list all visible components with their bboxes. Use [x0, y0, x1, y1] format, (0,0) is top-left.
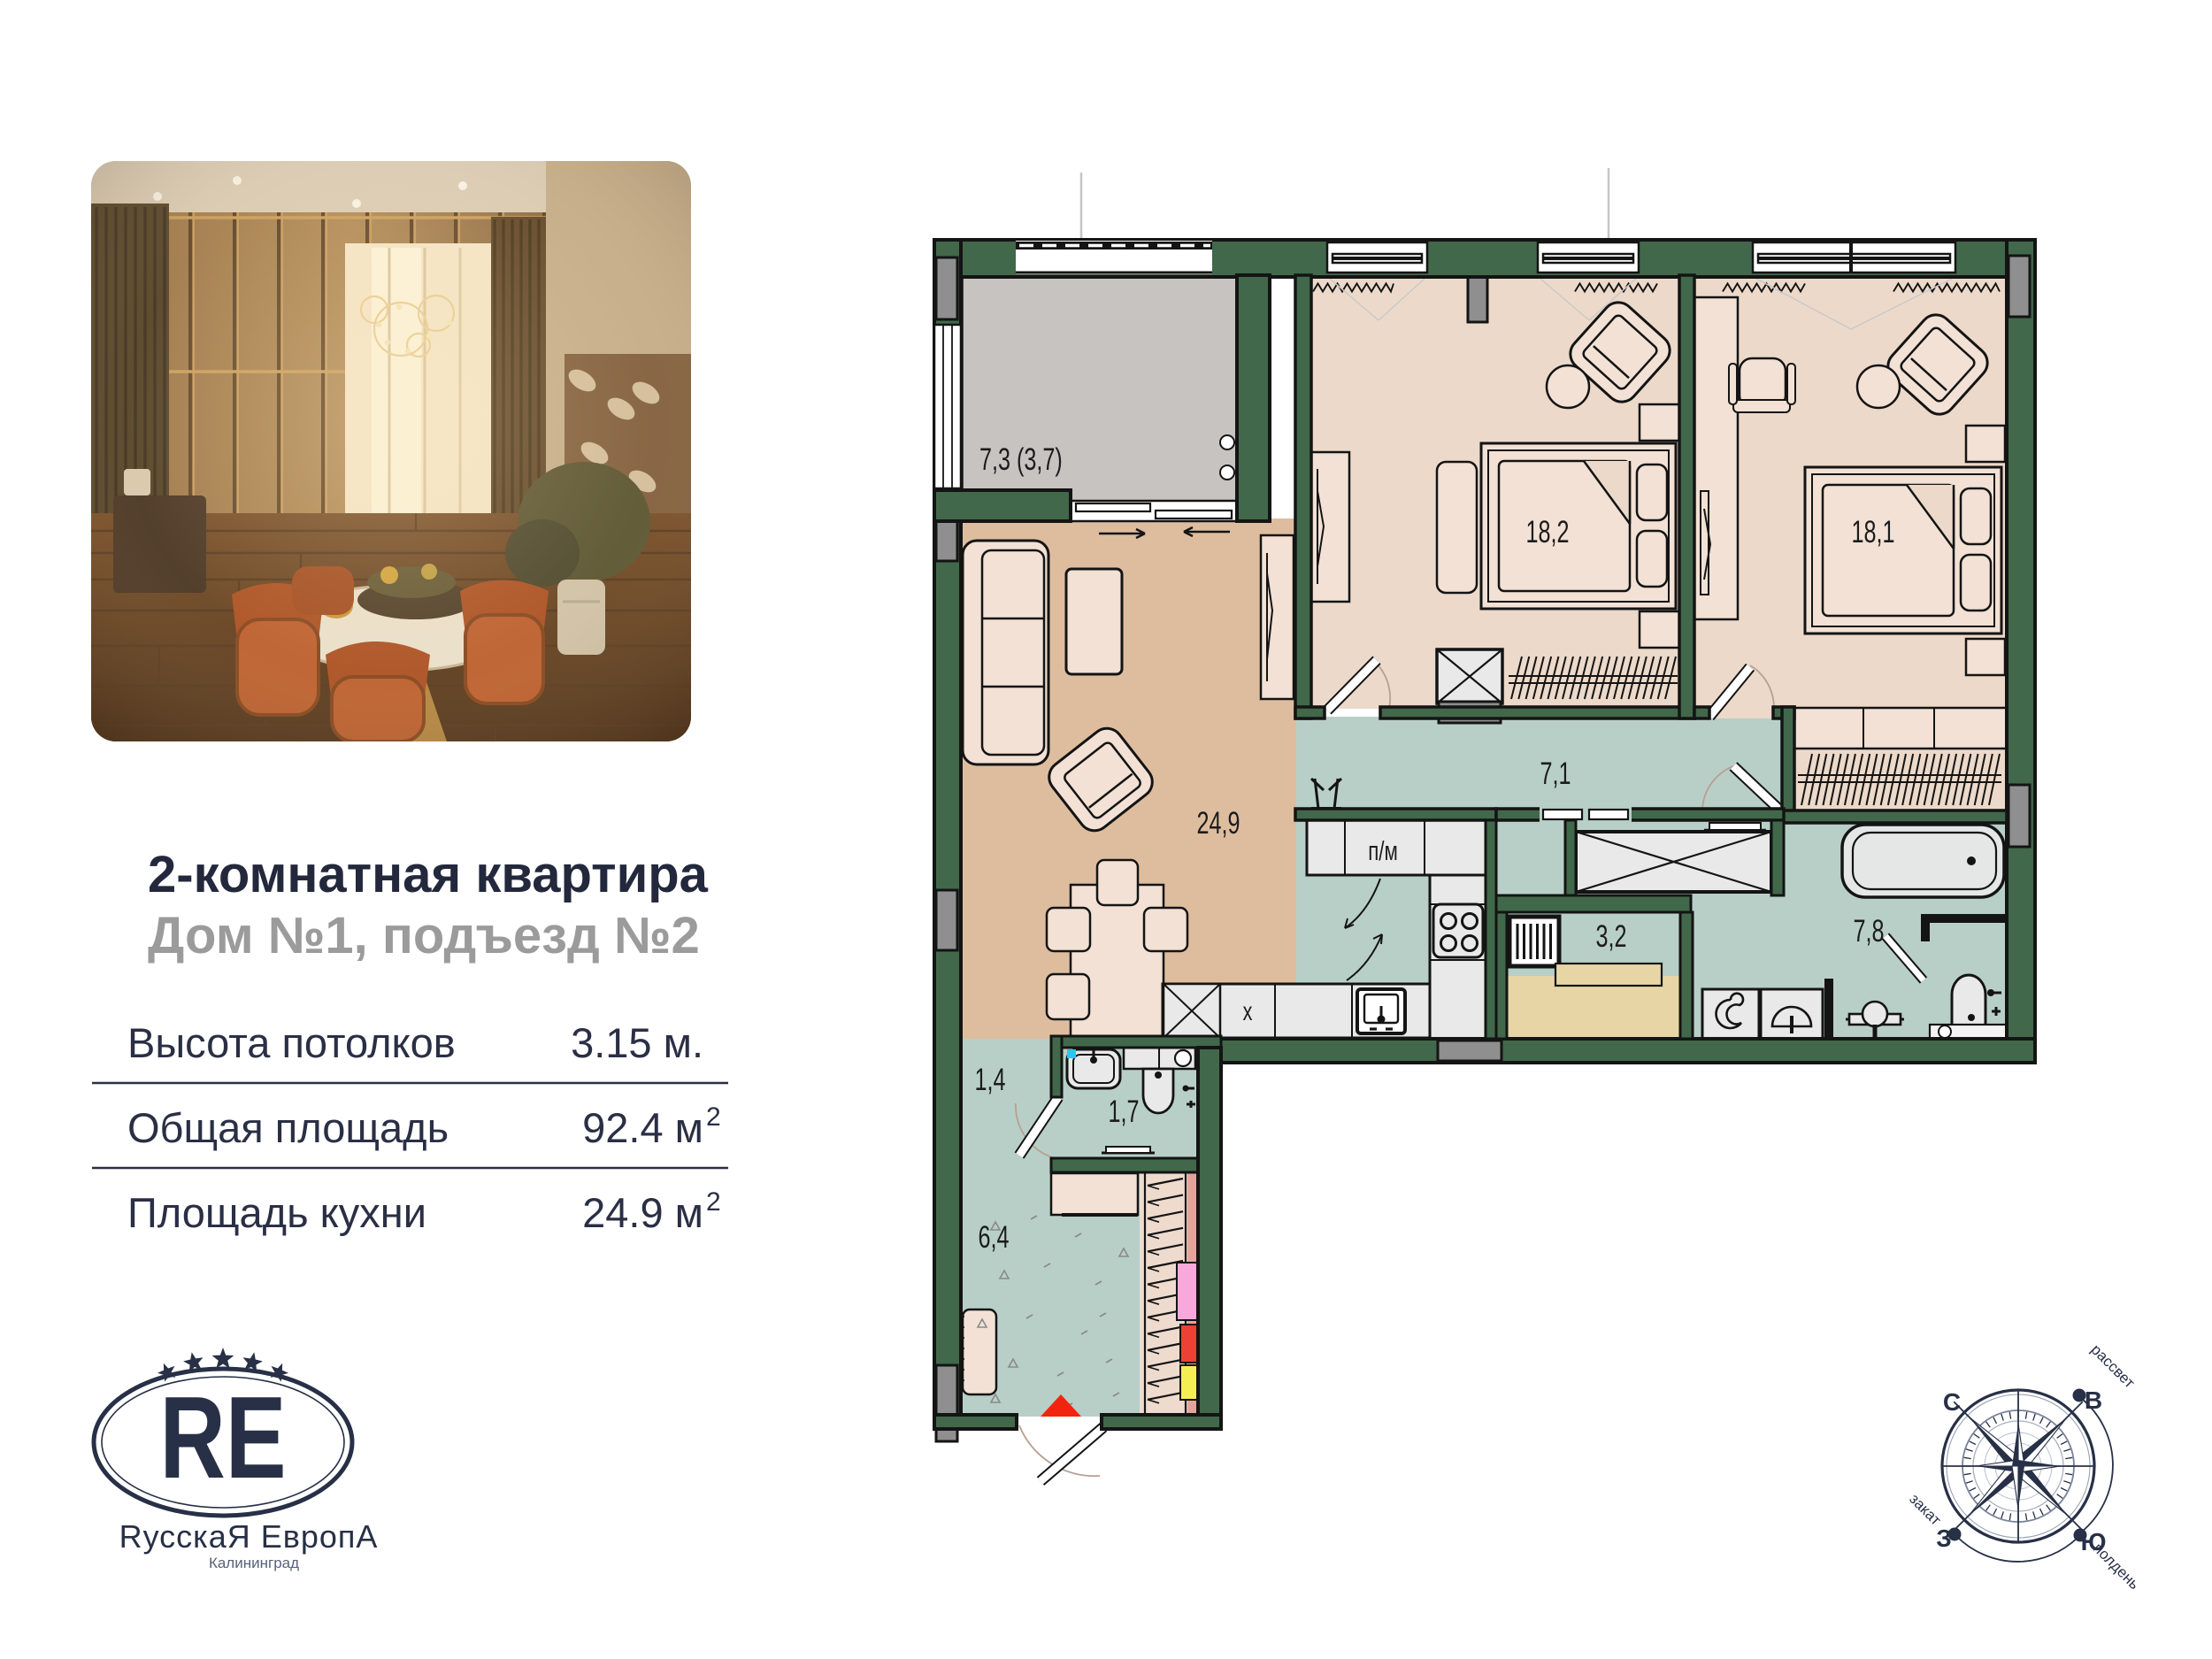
svg-text:Высота потолков: Высота потолков: [127, 1019, 456, 1066]
svg-text:1,4: 1,4: [974, 1063, 1005, 1097]
svg-text:полдень: полдень: [2090, 1540, 2143, 1593]
svg-text:3.15 м.: 3.15 м.: [571, 1019, 703, 1066]
svg-text:Общая площадь: Общая площадь: [127, 1104, 449, 1151]
svg-text:2-комнатная квартира: 2-комнатная квартира: [148, 846, 709, 903]
svg-text:7,1: 7,1: [1540, 757, 1571, 791]
svg-text:7,3 (3,7): 7,3 (3,7): [979, 442, 1063, 477]
svg-text:закат: закат: [1906, 1491, 1944, 1529]
svg-text:RусскаЯ ЕвропА: RусскаЯ ЕвропА: [119, 1518, 379, 1555]
svg-text:92.4 м: 92.4 м: [582, 1104, 703, 1151]
svg-text:7,8: 7,8: [1853, 914, 1884, 949]
svg-text:С: С: [1943, 1388, 1961, 1416]
svg-text:24.9 м: 24.9 м: [582, 1189, 703, 1236]
svg-text:24,9: 24,9: [1196, 806, 1240, 841]
svg-text:1,7: 1,7: [1108, 1094, 1139, 1129]
svg-text:2: 2: [706, 1102, 721, 1132]
svg-text:18,1: 18,1: [1851, 515, 1894, 549]
svg-text:Калининград: Калининград: [209, 1555, 299, 1571]
svg-text:18,2: 18,2: [1525, 515, 1569, 549]
svg-text:п/м: п/м: [1368, 835, 1398, 865]
svg-text:Дом №1, подъезд №2: Дом №1, подъезд №2: [148, 907, 700, 964]
svg-text:3,2: 3,2: [1595, 919, 1626, 954]
svg-text:х: х: [1243, 995, 1253, 1025]
svg-text:рассвет: рассвет: [2087, 1341, 2138, 1392]
svg-text:Площадь кухни: Площадь кухни: [127, 1189, 426, 1236]
svg-text:2: 2: [706, 1187, 721, 1217]
svg-text:RE: RE: [159, 1373, 286, 1503]
